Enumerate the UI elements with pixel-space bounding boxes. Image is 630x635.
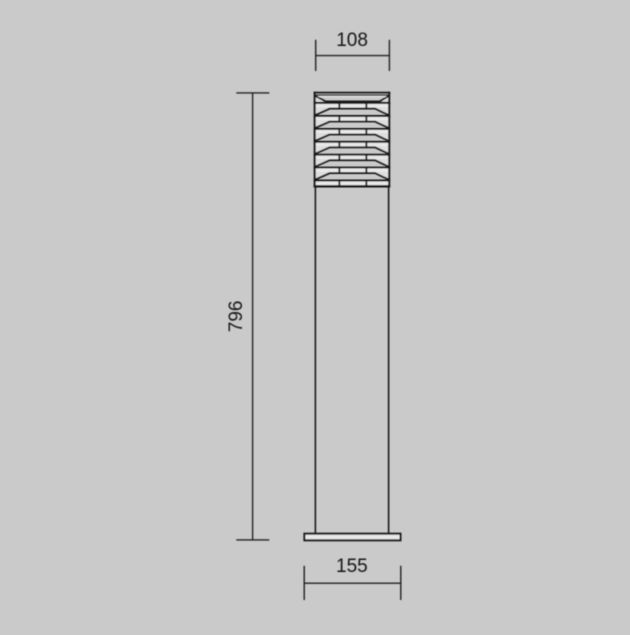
svg-text:108: 108 (336, 30, 368, 51)
svg-text:155: 155 (336, 556, 368, 577)
svg-text:796: 796 (226, 301, 247, 333)
